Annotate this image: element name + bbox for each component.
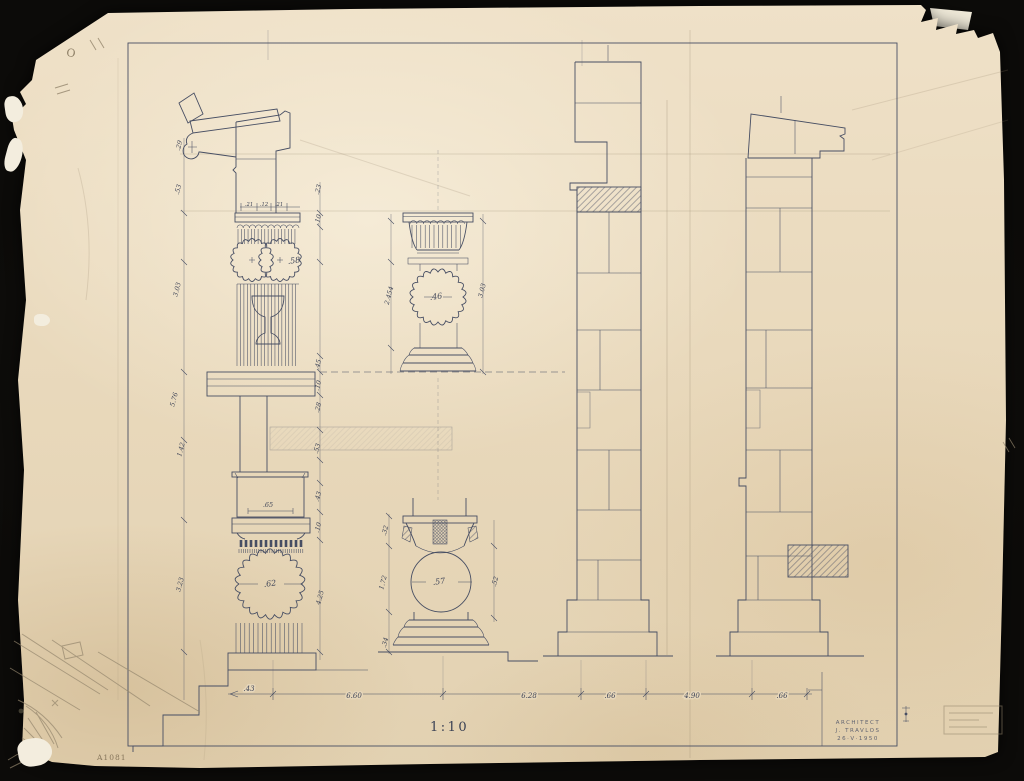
scanned-drawing-sheet: .43 6.60 6.28 .66 4.90 .66 .29 .53 3.03 … xyxy=(0,0,1024,781)
pencil-sketches xyxy=(8,438,1015,768)
plan-diameter-label: .62 xyxy=(263,578,277,589)
dim-label: .28 xyxy=(313,401,323,413)
plan-diameter-label: .58 xyxy=(287,255,301,266)
pier-elevation-2 xyxy=(716,96,864,746)
dim-label: .65 xyxy=(263,501,273,509)
dim-label: .43 xyxy=(313,490,323,502)
dim-label: .66 xyxy=(776,692,788,700)
dim-label: .53 xyxy=(173,183,183,195)
capital-flutes xyxy=(238,229,295,244)
frame-center-ticks xyxy=(268,30,582,66)
pencil-stamp-box xyxy=(944,706,1002,734)
pier-elevation-1 xyxy=(543,45,673,656)
dim-label: .66 xyxy=(604,692,616,700)
dim-label: 2.454 xyxy=(383,285,396,306)
dim-label: 4.90 xyxy=(683,692,700,700)
dim-label: 1.42 xyxy=(175,441,186,457)
dim-label: 6.60 xyxy=(346,692,362,700)
dim-label: .21 xyxy=(275,202,283,208)
construction-lines xyxy=(180,100,890,655)
dim-label: .45 xyxy=(313,358,323,370)
dim-label: .34 xyxy=(380,636,390,648)
dim-label: .10 xyxy=(313,521,323,533)
sheet-number: A1081 xyxy=(96,753,127,762)
bead-fringe xyxy=(239,549,303,553)
dim-label: .43 xyxy=(243,685,255,693)
mid-capital-flutes xyxy=(412,225,460,248)
dim-label: .12 xyxy=(260,202,268,208)
edge-tear xyxy=(34,314,50,326)
section-marker xyxy=(902,706,910,722)
dim-label: 3.03 xyxy=(171,281,182,297)
dim-label: .23 xyxy=(313,183,323,195)
pencil-letter: O xyxy=(66,46,77,60)
title-block: ARCHITECT J. TRAVLOS 26·V·1950 xyxy=(835,720,881,742)
chain-ticks xyxy=(230,656,810,700)
dim-label: 6.28 xyxy=(521,692,537,700)
dim-label: .21 xyxy=(245,202,253,208)
dim-label: 3.03 xyxy=(476,282,487,298)
lower-shaft-flutes xyxy=(236,623,302,653)
plan-center-marks xyxy=(249,257,283,263)
plan-diameter-label: .46 xyxy=(429,291,443,302)
dim-label: .10 xyxy=(313,379,323,391)
scale-label: 1:10 xyxy=(430,720,469,735)
middle-base-study xyxy=(378,498,538,661)
dim-label: .52 xyxy=(490,575,500,587)
dim-label: .53 xyxy=(312,442,322,454)
bead-row xyxy=(241,540,301,547)
dim-label: 1.72 xyxy=(377,574,388,590)
dim-label: 5.76 xyxy=(168,391,179,407)
architect-line: ARCHITECT xyxy=(836,720,880,726)
plan-diameter-label: .57 xyxy=(432,576,447,587)
left-steps xyxy=(133,653,368,752)
dim-label: .10 xyxy=(313,213,323,225)
pencil-notes-topleft: O xyxy=(55,38,104,94)
architect-name: J. TRAVLOS xyxy=(835,728,881,734)
dimension-labels: .29 .53 3.03 5.76 1.42 3.23 .23 .10 .45 … xyxy=(168,139,500,648)
dim-label: 4.25 xyxy=(314,589,326,606)
base-mouldings xyxy=(378,612,538,661)
architectural-drawing: .43 6.60 6.28 .66 4.90 .66 .29 .53 3.03 … xyxy=(0,0,1024,781)
paper-creases xyxy=(78,30,1008,760)
drawing-date: 26·V·1950 xyxy=(837,736,879,742)
dim-label: .32 xyxy=(380,524,390,536)
drawing-border-frame xyxy=(128,43,897,746)
